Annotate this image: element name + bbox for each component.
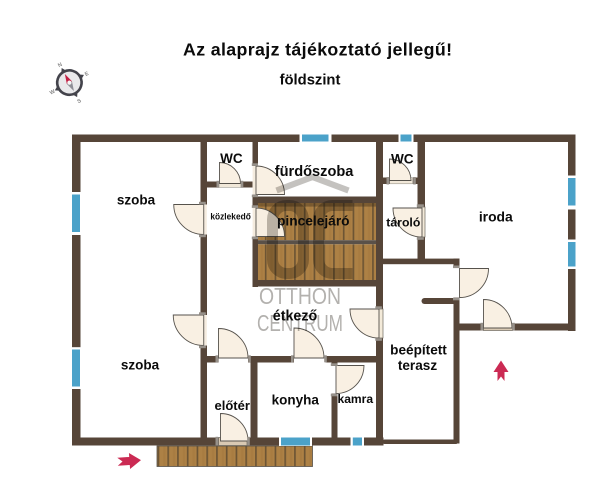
svg-text:iroda: iroda bbox=[479, 209, 513, 225]
svg-text:Az alaprajz tájékoztató jelleg: Az alaprajz tájékoztató jellegű! bbox=[183, 40, 452, 60]
svg-text:E: E bbox=[84, 71, 90, 78]
svg-text:OTTHON: OTTHON bbox=[259, 283, 341, 309]
svg-text:N: N bbox=[57, 62, 63, 69]
svg-text:közlekedő: közlekedő bbox=[210, 211, 251, 221]
svg-text:terasz: terasz bbox=[398, 358, 437, 373]
svg-text:fürdőszoba: fürdőszoba bbox=[275, 164, 355, 180]
svg-text:konyha: konyha bbox=[272, 393, 320, 408]
svg-text:WC: WC bbox=[391, 151, 414, 166]
svg-text:tároló: tároló bbox=[386, 216, 420, 230]
svg-text:szoba: szoba bbox=[117, 192, 156, 207]
svg-text:kamra: kamra bbox=[337, 392, 373, 406]
svg-text:beépített: beépített bbox=[390, 343, 447, 358]
svg-text:étkező: étkező bbox=[273, 309, 318, 325]
svg-text:szoba: szoba bbox=[121, 358, 160, 373]
svg-text:előtér: előtér bbox=[214, 398, 249, 413]
svg-text:pincelejáró: pincelejáró bbox=[277, 214, 350, 229]
svg-text:WC: WC bbox=[220, 151, 243, 166]
svg-text:földszint: földszint bbox=[280, 73, 341, 89]
svg-text:S: S bbox=[76, 98, 82, 105]
